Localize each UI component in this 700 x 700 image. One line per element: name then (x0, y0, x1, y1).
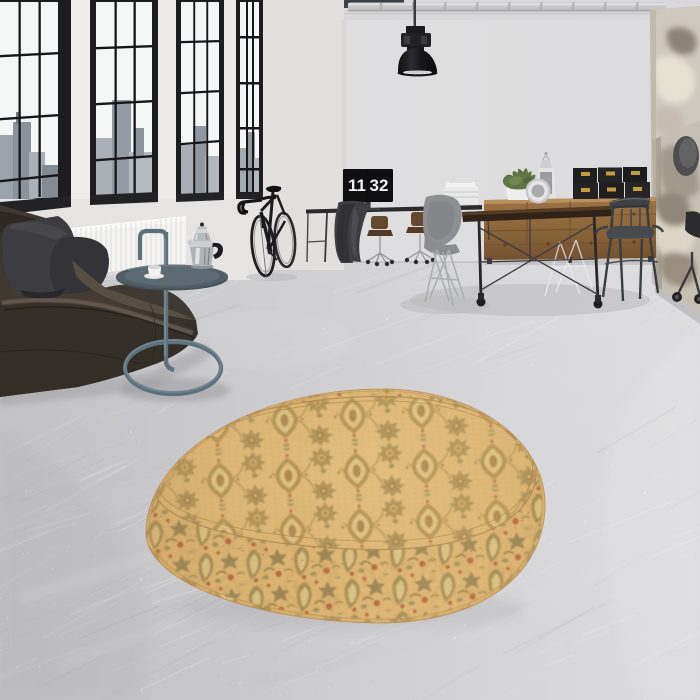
svg-text:32: 32 (370, 176, 389, 195)
svg-text:11: 11 (348, 176, 366, 195)
